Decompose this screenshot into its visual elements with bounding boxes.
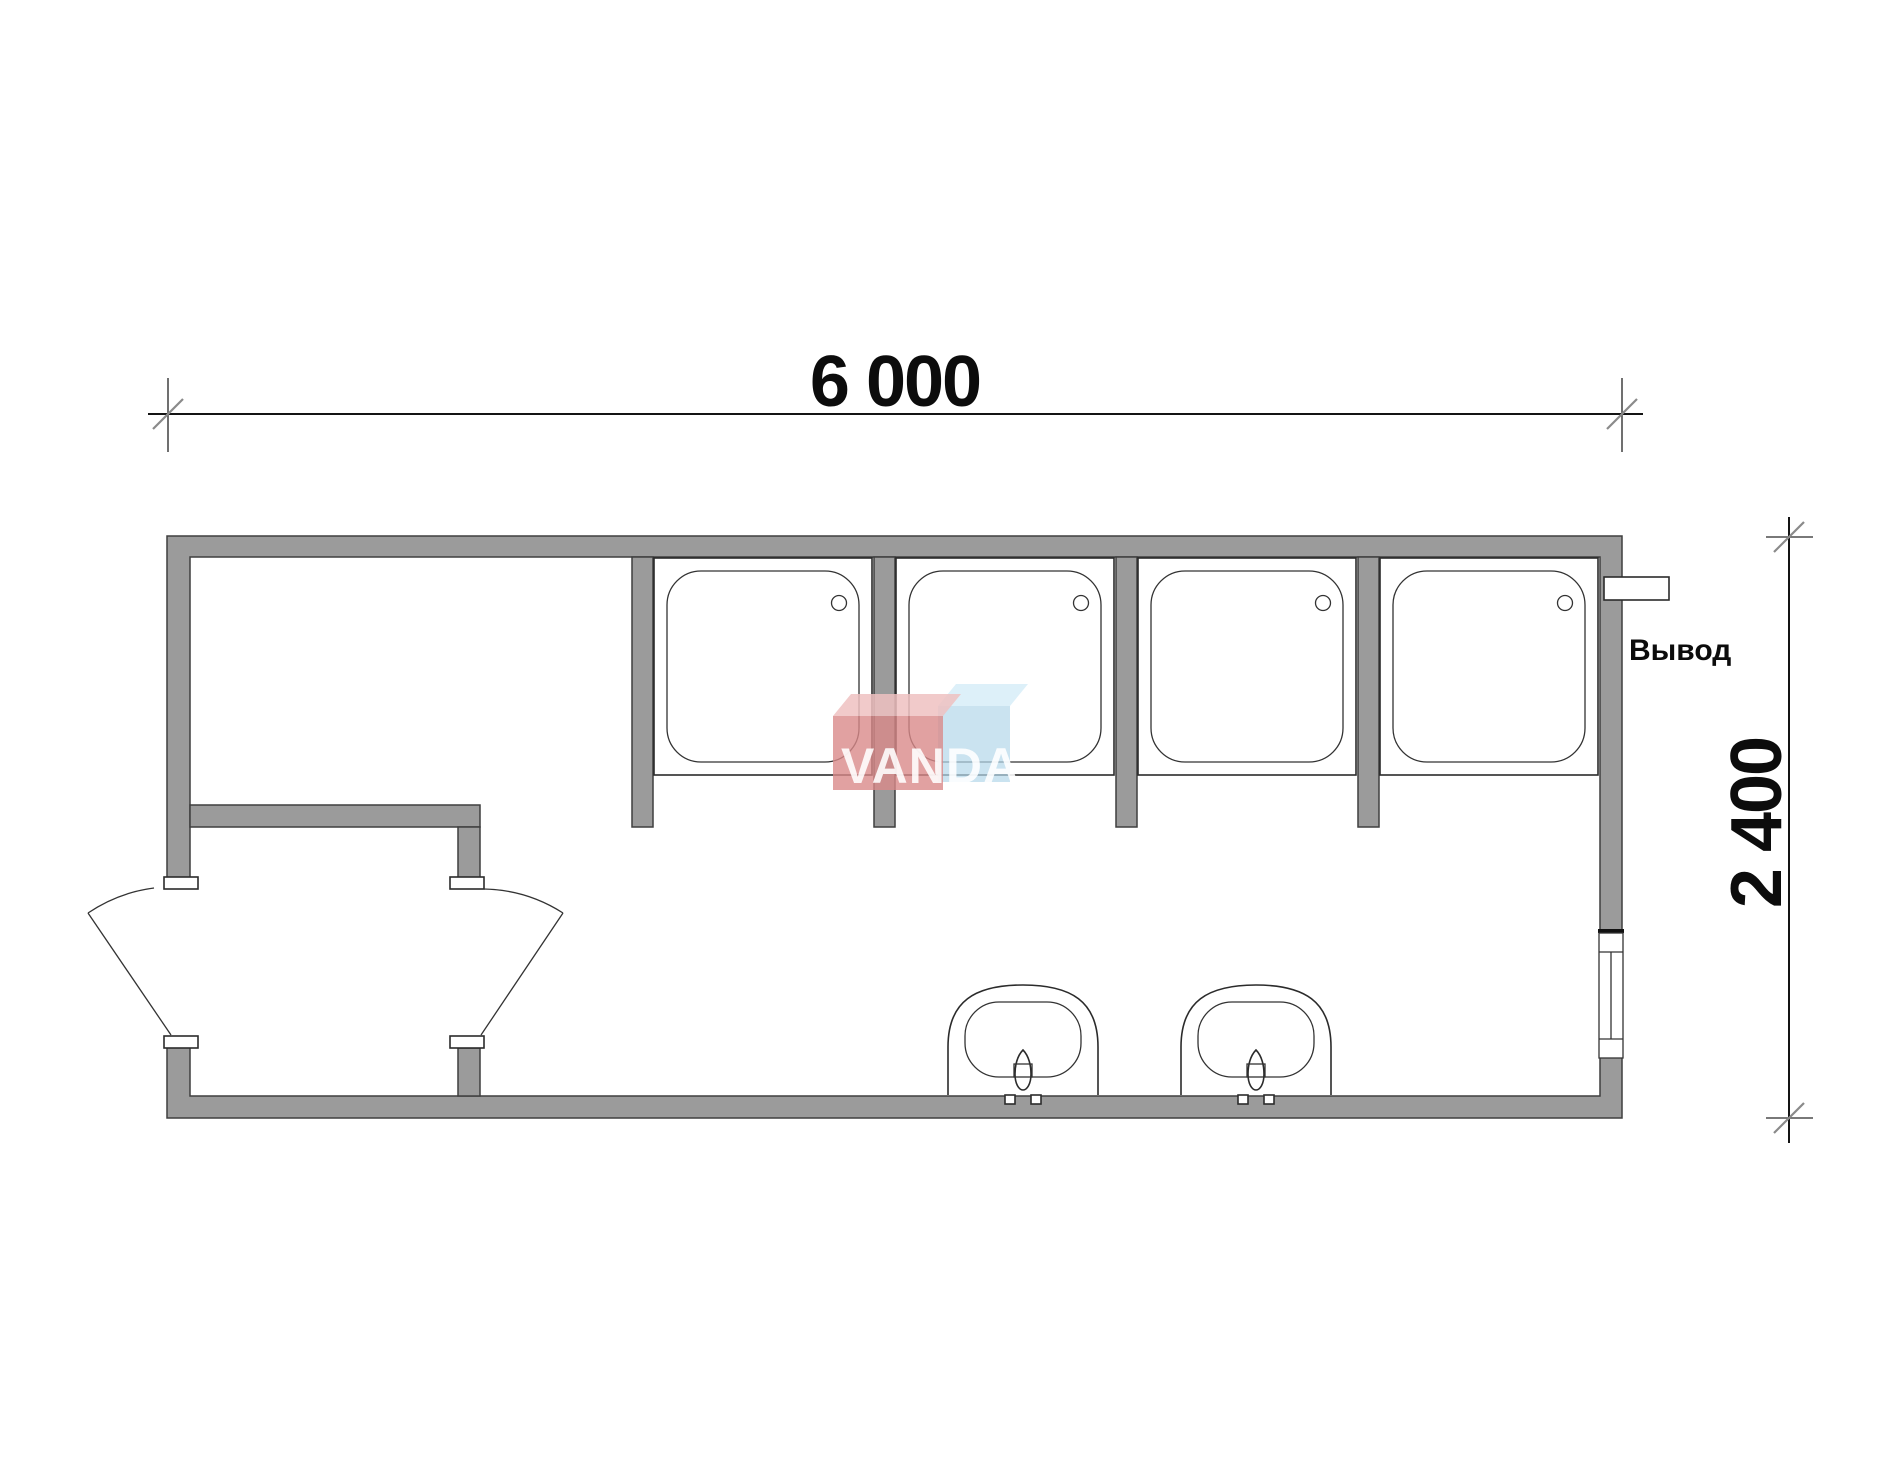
sink-mount-tab	[1238, 1095, 1248, 1104]
dimension-top: 6 000	[148, 342, 1643, 452]
floor-plan-page: 6 000 2 400	[0, 0, 1899, 1481]
shower-tray-rim	[1138, 558, 1356, 775]
watermark: VANDA	[833, 684, 1028, 794]
vestibule-wall-horizontal	[190, 805, 480, 827]
sink-mount-tab	[1005, 1095, 1015, 1104]
vestibule-wall-stub-lower	[458, 1048, 480, 1096]
door-leaf	[481, 913, 563, 1035]
door-jamb	[164, 877, 198, 889]
dimension-width-label: 6 000	[810, 342, 980, 422]
door-leaf	[88, 913, 171, 1035]
watermark-brand-text: VANDA	[841, 738, 1020, 794]
shower-tray-rim	[1380, 558, 1598, 775]
vestibule-wall-stub-upper	[458, 827, 480, 878]
shower-tray-4	[1380, 558, 1598, 775]
shower-partition-wall	[1116, 557, 1137, 827]
outlet-symbol	[1604, 577, 1669, 600]
dimension-height-label: 2 400	[1717, 738, 1797, 908]
shower-partition-wall	[1358, 557, 1379, 827]
door-jamb	[450, 877, 484, 889]
door-swing-arc	[88, 888, 154, 913]
door-jamb	[164, 1036, 198, 1048]
sink-mount-tab	[1264, 1095, 1274, 1104]
dimension-right: 2 400	[1717, 517, 1813, 1143]
sink-1	[948, 985, 1098, 1104]
outlet-label: Вывод	[1629, 634, 1731, 667]
sink-mount-tab	[1031, 1095, 1041, 1104]
shower-tray-3	[1138, 558, 1356, 775]
door-swing-left	[88, 888, 171, 1035]
door-opening	[160, 890, 197, 1036]
door-swing-arc	[484, 889, 563, 913]
door-swing-right	[481, 889, 563, 1035]
floor-plan-drawing: 6 000 2 400	[0, 0, 1899, 1481]
building: Вывод	[88, 536, 1731, 1118]
sink-2	[1181, 985, 1331, 1104]
watermark-red-top	[833, 694, 961, 716]
shower-partition-wall	[632, 557, 653, 827]
door-jamb	[450, 1036, 484, 1048]
